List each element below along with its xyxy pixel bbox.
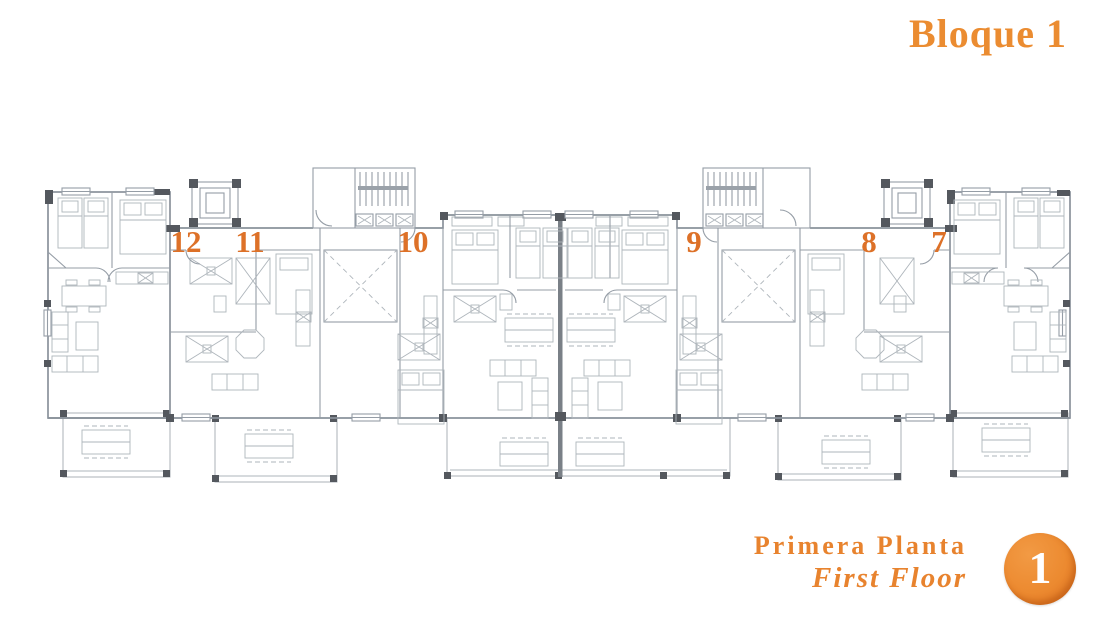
unit-label[interactable]: 10 <box>398 224 429 260</box>
unit-8-rooms <box>800 250 950 390</box>
stairwell-left <box>313 168 415 228</box>
floor-plan-page: Bloque 1 121110987 Primera Planta First … <box>0 0 1110 626</box>
stairwell-right <box>703 168 810 228</box>
floor-badge[interactable]: 1 <box>1004 533 1076 605</box>
unit-label[interactable]: 9 <box>686 224 702 260</box>
unit-12-rooms <box>48 192 232 372</box>
unit-label[interactable]: 11 <box>235 224 264 260</box>
void-right <box>722 250 795 322</box>
unit-label[interactable]: 12 <box>171 224 202 260</box>
unit-11-rooms <box>170 250 320 390</box>
floor-label-english: First Floor <box>812 562 967 595</box>
elevator-right <box>881 179 933 227</box>
block-title: Bloque 1 <box>909 10 1067 57</box>
elevator-left <box>189 179 241 227</box>
floor-label-spanish: Primera Planta <box>754 531 967 561</box>
unit-7-rooms <box>880 192 1070 372</box>
floor-badge-number: 1 <box>1029 545 1052 591</box>
unit-label[interactable]: 8 <box>861 224 877 260</box>
unit-label[interactable]: 7 <box>931 224 947 260</box>
void-left <box>324 250 397 322</box>
